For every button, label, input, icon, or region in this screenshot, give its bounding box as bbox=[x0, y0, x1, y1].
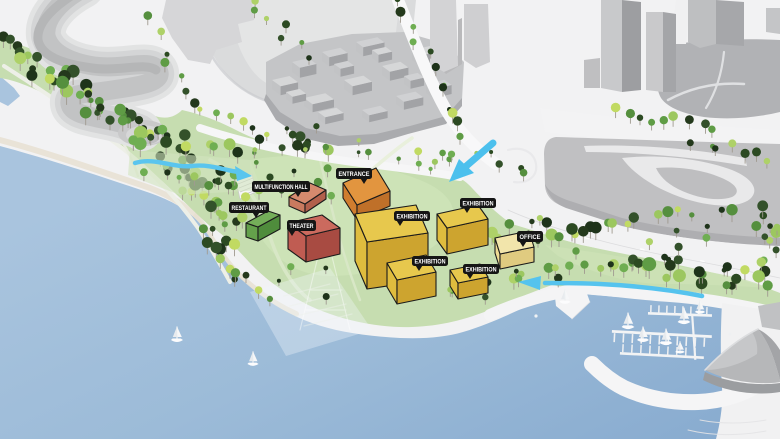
svg-text:EXHIBITION: EXHIBITION bbox=[415, 258, 446, 265]
svg-text:OFFICE: OFFICE bbox=[520, 234, 541, 241]
svg-text:RESTAURANT: RESTAURANT bbox=[232, 205, 268, 212]
svg-text:THEATER: THEATER bbox=[290, 223, 314, 230]
svg-text:MULTIFUNCTION HALL: MULTIFUNCTION HALL bbox=[255, 184, 308, 191]
svg-text:EXHIBITION: EXHIBITION bbox=[463, 200, 494, 207]
svg-text:EXHIBITION: EXHIBITION bbox=[397, 213, 428, 220]
svg-text:EXHIBITION: EXHIBITION bbox=[466, 266, 497, 273]
svg-text:ENTRANCE: ENTRANCE bbox=[339, 171, 370, 178]
